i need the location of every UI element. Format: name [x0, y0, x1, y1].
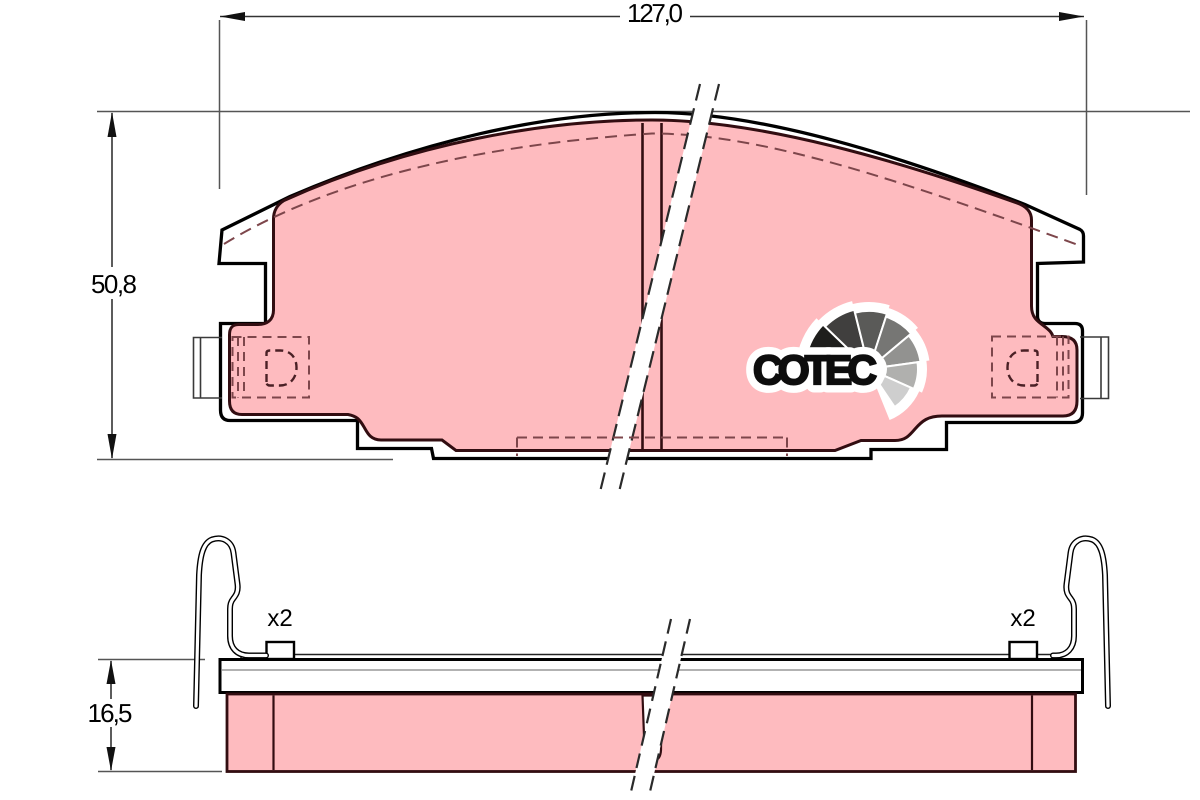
svg-text:x2: x2	[1010, 605, 1035, 632]
svg-text:50,8: 50,8	[91, 269, 137, 299]
svg-text:x2: x2	[267, 605, 292, 632]
svg-text:127,0: 127,0	[627, 0, 683, 28]
svg-text:COTEC: COTEC	[753, 347, 877, 393]
svg-text:16,5: 16,5	[88, 698, 133, 728]
